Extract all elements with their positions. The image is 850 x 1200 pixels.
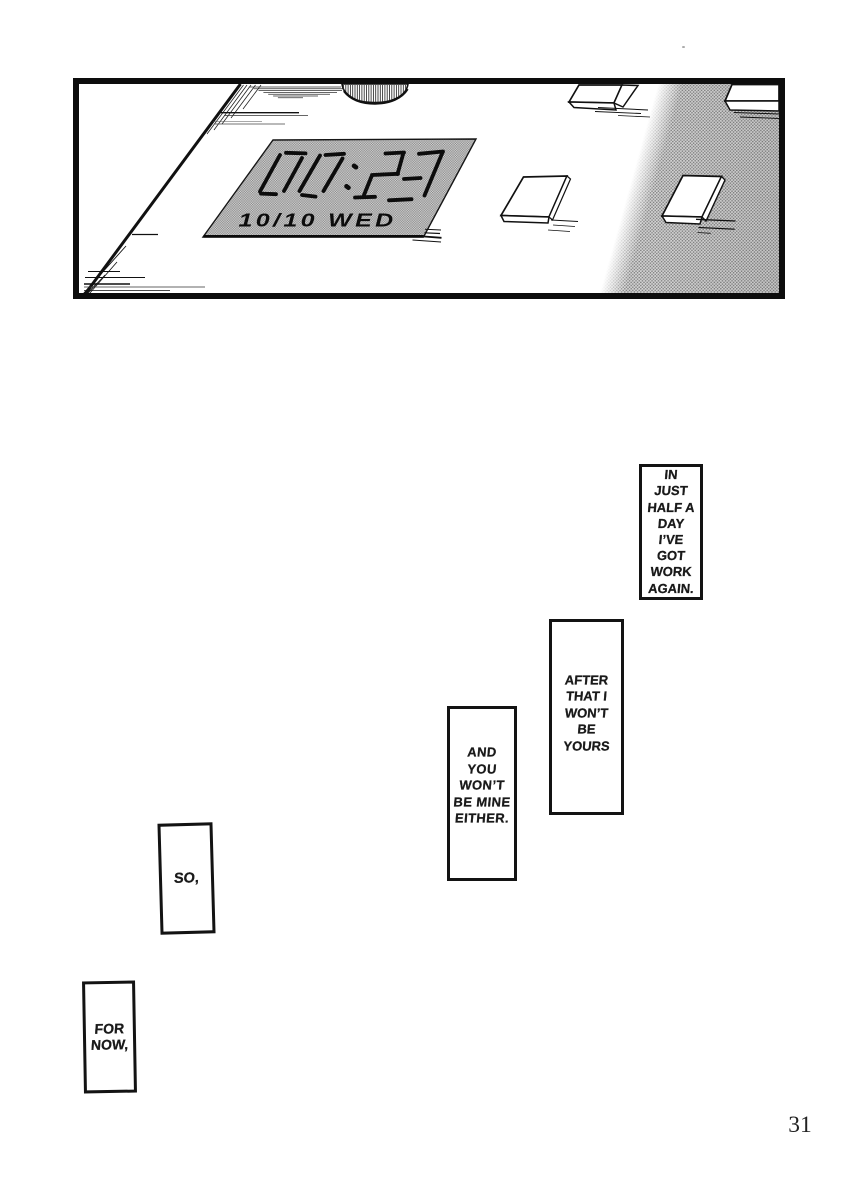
- svg-text:10/10 WED: 10/10 WED: [239, 210, 397, 231]
